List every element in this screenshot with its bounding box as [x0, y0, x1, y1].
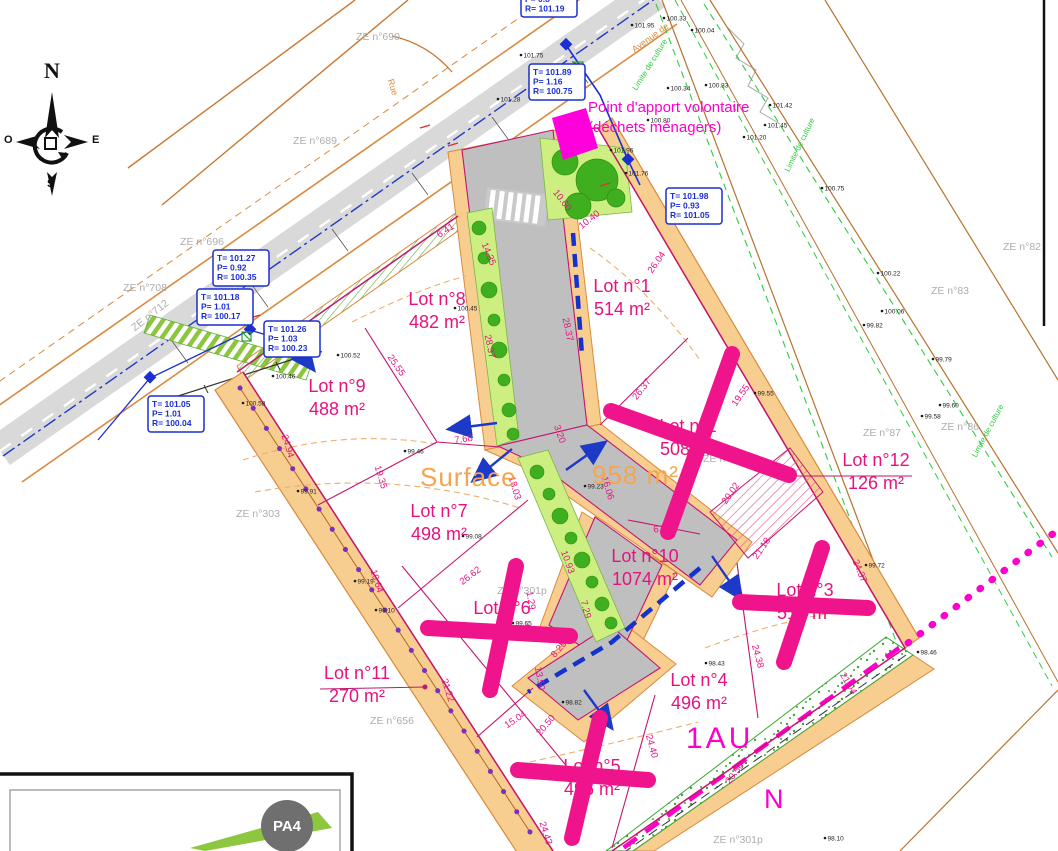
spot-elevation: 101.28	[501, 97, 521, 104]
zoning-label-1au: 1AU	[686, 722, 753, 756]
lot-area: 126 m²	[848, 473, 904, 493]
manhole-value: P= 0.92	[217, 263, 247, 273]
spot-elevation: 99.10	[379, 608, 396, 615]
manhole-value: T= 101.27	[217, 253, 256, 263]
manhole-value: R= 100.23	[268, 343, 308, 353]
spot-elevation: 99.72	[869, 563, 886, 570]
spot-elevation-dot	[297, 490, 300, 493]
spot-elevation: 99.55	[758, 391, 775, 398]
parcel-label: ZE n°86	[941, 421, 979, 433]
manhole-boxes: P= 0.8R= 101.19T= 101.89P= 1.16R= 100.75…	[148, 0, 722, 432]
manhole-value: R= 100.35	[217, 272, 257, 282]
compass-north-letter: N	[44, 58, 60, 84]
spot-elevation: 99.08	[466, 534, 483, 541]
manhole-value: T= 101.89	[533, 67, 572, 77]
parcel-label: ZE n°301p	[713, 834, 763, 846]
spot-elevation: 100.06	[885, 309, 905, 316]
spot-elevation-dot	[764, 124, 767, 127]
parcel-label: ZE n°87	[863, 427, 901, 439]
spot-elevation: 101.76	[629, 171, 649, 178]
spot-elevation-dot	[821, 187, 824, 190]
parcel-label: ZE n°83	[931, 285, 969, 297]
spot-elevation-dot	[404, 450, 407, 453]
surface-value: 958 m²	[592, 460, 679, 491]
lot-area: 1074 m²	[612, 569, 678, 589]
lot-area: 488 m²	[309, 399, 365, 419]
lot-name: Lot n°10	[611, 546, 678, 566]
spot-elevation: 101.96	[614, 148, 634, 155]
spot-elevation-dot	[939, 404, 942, 407]
manhole-value: R= 101.05	[670, 210, 710, 220]
spot-elevation-dot	[667, 87, 670, 90]
spot-elevation-dot	[663, 17, 666, 20]
spot-elevation: 100.33	[667, 16, 687, 23]
lot-name: Lot n°7	[410, 501, 467, 521]
lot-name: Lot n°9	[308, 376, 365, 396]
spot-elevation-dot	[354, 580, 357, 583]
dimension-label: 24.38	[749, 643, 766, 669]
spot-elevation: 100.04	[695, 28, 715, 35]
spot-elevation-dot	[863, 324, 866, 327]
manhole-value: R= 101.19	[525, 4, 565, 14]
spot-elevation-dot	[917, 651, 920, 654]
spot-elevation: 100.52	[341, 353, 361, 360]
spot-elevation: 99.79	[936, 357, 953, 364]
spot-elevation-dot	[932, 358, 935, 361]
spot-elevation-dot	[877, 272, 880, 275]
spot-elevation: 100.34	[671, 86, 691, 93]
spot-elevation-dot	[337, 354, 340, 357]
spot-elevation-dot	[625, 172, 628, 175]
cadastral-plan-canvas: 101.75101.28101.95100.33100.04100.34100.…	[0, 0, 1058, 851]
zone-north-label: N	[764, 784, 784, 815]
spot-elevation: 100.46	[276, 374, 296, 381]
lot-name: Lot n°4	[670, 670, 727, 690]
spot-elevation-dot	[375, 609, 378, 612]
spot-elevation-dot	[272, 375, 275, 378]
manhole-value: P= 1.01	[152, 409, 182, 419]
spot-elevation: 99.82	[867, 323, 884, 330]
compass-west-letter: O	[4, 134, 13, 146]
dimension-label: 15.04	[503, 709, 529, 731]
manhole-value: P= 1.16	[533, 77, 563, 87]
dimension-label: 26.62	[458, 564, 484, 587]
compass-east-letter: E	[92, 134, 99, 146]
spot-elevation: 100.22	[881, 271, 901, 278]
spot-elevation-dot	[769, 104, 772, 107]
parcel-label: ZE n°303	[236, 508, 280, 520]
manhole-value: R= 100.75	[533, 86, 573, 96]
spot-elevation-dot	[520, 54, 523, 57]
manhole-value: T= 101.18	[201, 292, 240, 302]
spot-elevation-dot	[705, 84, 708, 87]
surface-label: Surface	[420, 462, 517, 493]
manhole-value: R= 100.04	[152, 418, 192, 428]
spot-elevation: 98.10	[828, 836, 845, 843]
spot-elevation: 101.42	[773, 103, 793, 110]
survey-plan-page: 101.75101.28101.95100.33100.04100.34100.…	[0, 0, 1058, 851]
spot-elevation-dot	[497, 98, 500, 101]
manhole-value: T= 101.26	[268, 324, 307, 334]
spot-elevation: 100.75	[825, 186, 845, 193]
lot-name: Lot n°8	[408, 289, 465, 309]
spot-elevation-dot	[562, 701, 565, 704]
parcel-label: ZE n°656	[370, 715, 414, 727]
lot-area: 482 m²	[409, 312, 465, 332]
parcel-label: ZE n°708	[123, 282, 167, 294]
lot-area: 514 m²	[594, 299, 650, 319]
spot-elevation: 98.46	[921, 650, 938, 657]
spot-elevation: 98.82	[566, 700, 583, 707]
sheet-badge: PA4	[261, 800, 313, 851]
spot-elevation: 101.20	[747, 135, 767, 142]
lot-area: 496 m²	[671, 693, 727, 713]
spot-elevation-dot	[631, 24, 634, 27]
spot-elevation-dot	[754, 392, 757, 395]
spot-elevation: 100.58	[246, 401, 266, 408]
manhole-value: P= 1.03	[268, 334, 298, 344]
spot-elevation-dot	[881, 310, 884, 313]
parcel-label: ZE n°689	[293, 135, 337, 147]
spot-elevation-dot	[610, 149, 613, 152]
parcel-label: ZE n°82	[1003, 241, 1041, 253]
manhole-value: T= 101.98	[670, 191, 709, 201]
existing-avenue	[0, 0, 780, 482]
manhole-value: P= 1.01	[201, 302, 231, 312]
spot-elevation: 99.60	[943, 403, 960, 410]
spot-elevation-dot	[824, 837, 827, 840]
spot-elevation-dot	[865, 564, 868, 567]
lot-area: 270 m²	[329, 686, 385, 706]
lot-name: Lot n°1	[593, 276, 650, 296]
dimension-label: 26.37	[630, 377, 653, 403]
parcel-label: ZE n°690	[356, 31, 400, 43]
parcel-label: ZE n°696	[180, 236, 224, 248]
spot-elevation: 101.45	[768, 123, 788, 130]
spot-elevation: 99.58	[925, 414, 942, 421]
dimension-label: 24.40	[643, 733, 660, 759]
manhole-value: T= 101.05	[152, 399, 191, 409]
spot-elevation: 101.75	[524, 53, 544, 60]
manhole-value: P= 0.93	[670, 201, 700, 211]
lot-area: 498 m²	[411, 524, 467, 544]
spot-elevation: 99.46	[408, 449, 425, 456]
spot-elevation: 101.95	[635, 23, 655, 30]
spot-elevation: 99.91	[301, 489, 318, 496]
manhole-value: R= 100.17	[201, 311, 241, 321]
lot-name: Lot n°11	[324, 663, 390, 683]
spot-elevation-dot	[921, 415, 924, 418]
dimension-label: 19.55	[730, 383, 753, 409]
lot-name: Lot n°12	[842, 450, 909, 470]
spot-elevation-dot	[691, 29, 694, 32]
spot-elevation-dot	[705, 662, 708, 665]
compass-south-letter: S	[47, 178, 54, 190]
spot-elevation: 98.43	[709, 661, 726, 668]
dimension-label: 26.04	[646, 250, 669, 276]
spot-elevation: 100.33	[709, 83, 729, 90]
road-name-label: Rue	[386, 78, 401, 97]
waste-point-label: Point d'apport volontaire (déchets ménag…	[588, 98, 749, 137]
spot-elevation-dot	[584, 485, 587, 488]
spot-elevation-dot	[242, 402, 245, 405]
